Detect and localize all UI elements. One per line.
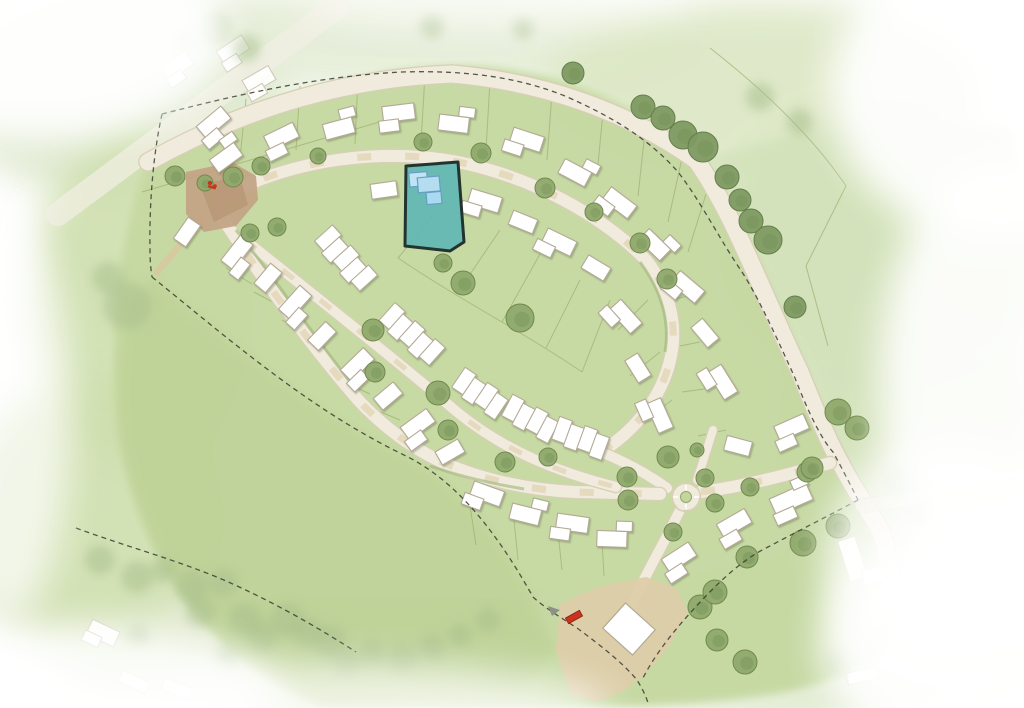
highlighted-house-block [426, 191, 442, 204]
hedgerow-tree-core [697, 140, 714, 157]
highlighted-house-block [417, 176, 440, 193]
watercolor-tree [448, 624, 472, 648]
street-tree [801, 457, 823, 479]
street-tree-core [444, 426, 455, 437]
street-tree [165, 166, 185, 186]
watercolor-tree [85, 545, 115, 575]
street-tree-core [669, 528, 679, 538]
street-tree-core [710, 587, 723, 600]
street-tree-core [439, 259, 449, 269]
street-tree-core [501, 458, 512, 469]
street-tree-core [713, 635, 725, 647]
hedgerow-tree-core [791, 302, 803, 314]
street-tree [268, 218, 286, 236]
street-tree-core [171, 172, 182, 183]
street-tree [310, 148, 326, 164]
watercolor-tree [209, 569, 237, 597]
building-block [379, 119, 400, 133]
street-tree [252, 157, 270, 175]
street-tree [471, 143, 491, 163]
hedgerow-tree [715, 165, 739, 189]
hedgerow-tree-core [736, 195, 748, 207]
building-block [616, 521, 632, 532]
street-tree-core [636, 239, 647, 250]
street-tree [706, 494, 724, 512]
hedgerow-tree [754, 226, 782, 254]
street-tree-core [419, 138, 429, 148]
street-tree-core [624, 496, 635, 507]
street-tree-core [852, 423, 865, 436]
street-tree [706, 629, 728, 651]
street-tree [539, 448, 557, 466]
street-tree [617, 467, 637, 487]
street-tree-core [623, 473, 634, 484]
street-tree-core [694, 447, 702, 455]
street-tree-core [315, 152, 324, 161]
street-tree [223, 167, 243, 187]
street-tree-core [663, 275, 674, 286]
street-tree [733, 650, 757, 674]
watercolor-tree [787, 109, 813, 135]
building-block [459, 106, 476, 118]
street-tree [690, 443, 704, 457]
street-tree [434, 254, 452, 272]
street-tree [365, 362, 385, 382]
street-tree-core [371, 368, 382, 379]
street-tree-core [711, 499, 721, 509]
street-tree-core [743, 552, 755, 564]
street-tree-core [798, 537, 812, 551]
street-tree [414, 133, 432, 151]
site-plan [0, 0, 1024, 708]
building-block [370, 181, 398, 199]
street-tree-core [369, 325, 381, 337]
street-tree [451, 271, 475, 295]
hedgerow-tree-core [638, 102, 651, 115]
watercolor-tree [476, 608, 500, 632]
street-tree-core [701, 474, 711, 484]
street-tree [506, 304, 534, 332]
street-tree [362, 319, 384, 341]
street-tree [664, 523, 682, 541]
street-tree-core [458, 278, 471, 291]
street-tree-core [541, 184, 552, 195]
site-plan-canvas [0, 0, 1024, 708]
street-tree-core [740, 657, 753, 670]
street-tree [845, 416, 869, 440]
watercolor-tree [185, 598, 215, 628]
street-tree-core [695, 602, 708, 615]
street-tree [618, 490, 638, 510]
hedgerow-tree [562, 62, 584, 84]
street-tree-core [808, 463, 820, 475]
street-tree-core [257, 162, 267, 172]
hedgerow-tree-core [569, 68, 581, 80]
street-tree-core [246, 229, 256, 239]
watercolor-tree [419, 635, 445, 661]
street-tree [696, 469, 714, 487]
street-tree-core [590, 208, 600, 218]
house [370, 181, 398, 199]
street-tree [741, 478, 759, 496]
street-tree [630, 233, 650, 253]
street-tree [703, 580, 727, 604]
street-tree [438, 420, 458, 440]
street-tree-core [746, 483, 756, 493]
building-block [549, 526, 570, 541]
street-tree [657, 446, 679, 468]
hedgerow-tree [729, 189, 751, 211]
street-tree [495, 452, 515, 472]
hedgerow-tree-core [658, 113, 671, 126]
hedgerow-tree-core [746, 216, 759, 229]
street-tree-core [229, 173, 240, 184]
building-block [597, 530, 628, 547]
watercolor-tree [92, 262, 124, 294]
street-tree [241, 224, 259, 242]
street-tree [426, 381, 450, 405]
street-tree-core [833, 406, 847, 420]
hedgerow-tree-core [722, 172, 735, 185]
street-tree [535, 178, 555, 198]
street-tree-core [664, 452, 676, 464]
street-tree-core [514, 312, 529, 327]
street-tree-core [544, 453, 554, 463]
watercolor-tree [121, 561, 153, 593]
street-tree-core [273, 223, 283, 233]
street-tree-core [433, 388, 446, 401]
roundabout-island [681, 492, 692, 503]
hedgerow-tree [688, 132, 718, 162]
watercolor-tree [746, 83, 774, 111]
street-tree [657, 269, 677, 289]
street-tree-core [477, 149, 488, 160]
hedgerow-tree-core [762, 234, 777, 249]
hedgerow-tree [784, 296, 806, 318]
play-feature-dot [208, 181, 212, 185]
watercolor-tree [232, 34, 260, 62]
street-tree [585, 203, 603, 221]
